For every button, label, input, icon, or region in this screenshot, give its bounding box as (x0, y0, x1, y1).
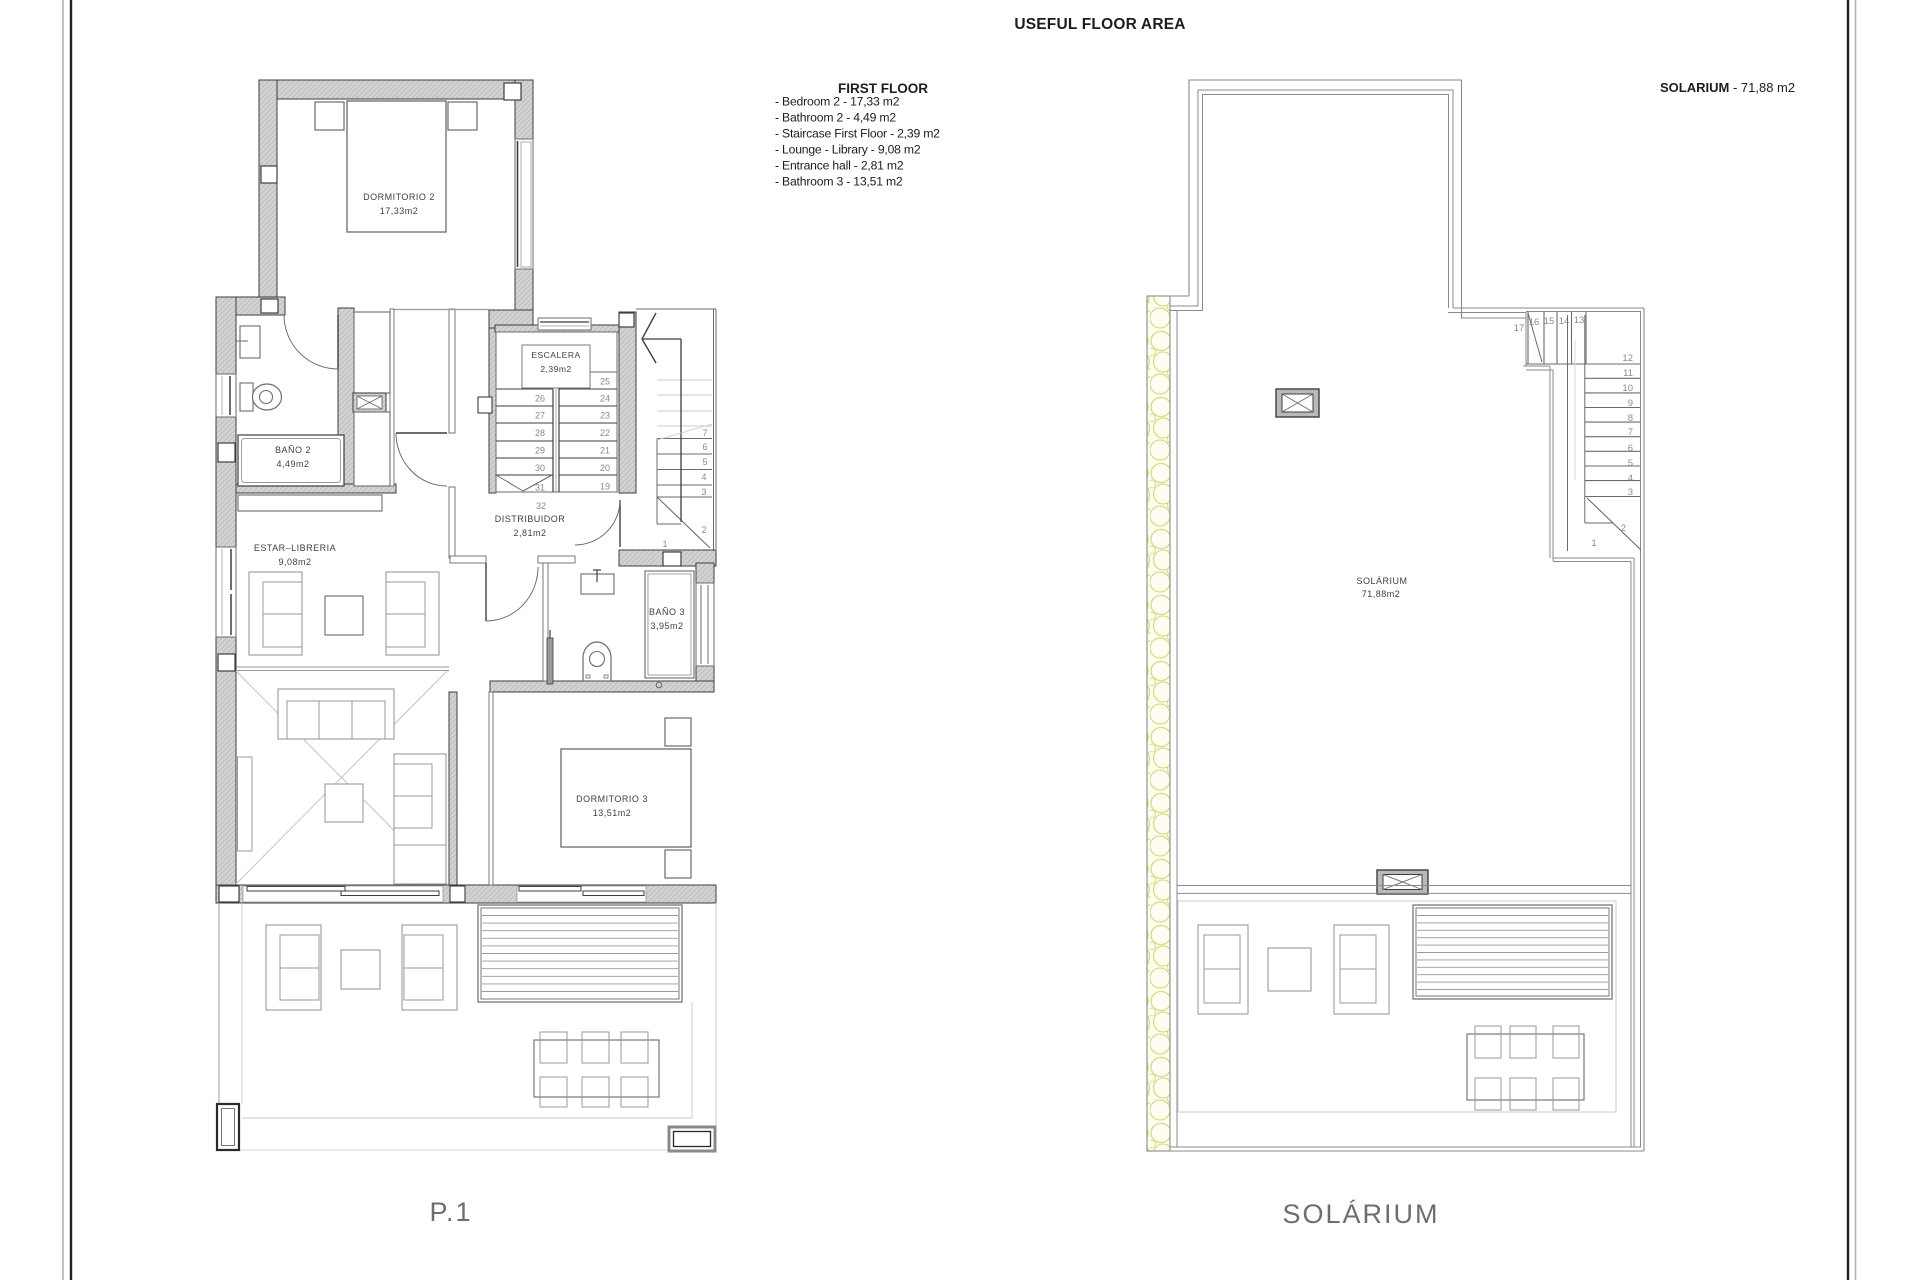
svg-text:13: 13 (1574, 315, 1585, 326)
svg-text:- Entrance hall - 2,81 m2: - Entrance hall - 2,81 m2 (775, 159, 904, 173)
svg-text:SOLÁRIUM: SOLÁRIUM (1356, 576, 1407, 586)
svg-text:BAÑO 3: BAÑO 3 (649, 607, 685, 617)
svg-text:2: 2 (1621, 523, 1626, 534)
svg-text:DORMITORIO 3: DORMITORIO 3 (576, 794, 648, 804)
svg-text:- Staircase First Floor - 2,39: - Staircase First Floor - 2,39 m2 (775, 127, 940, 141)
svg-text:- Bathroom 2 - 4,49 m2: - Bathroom 2 - 4,49 m2 (775, 111, 896, 125)
svg-text:19: 19 (600, 482, 610, 492)
svg-text:4: 4 (1628, 473, 1633, 484)
svg-text:ESCALERA: ESCALERA (531, 350, 580, 360)
svg-text:23: 23 (600, 411, 610, 421)
svg-text:1: 1 (1591, 538, 1596, 549)
svg-text:3: 3 (701, 487, 706, 497)
svg-text:5: 5 (1628, 458, 1633, 469)
svg-text:22: 22 (600, 428, 610, 438)
svg-text:16: 16 (1529, 317, 1540, 328)
svg-text:6: 6 (1628, 443, 1633, 454)
svg-text:2,81m2: 2,81m2 (513, 528, 546, 538)
svg-text:15: 15 (1544, 316, 1555, 327)
svg-text:7: 7 (702, 428, 707, 438)
svg-text:27: 27 (535, 411, 545, 421)
svg-text:26: 26 (535, 394, 545, 404)
svg-text:5: 5 (702, 457, 707, 467)
svg-text:USEFUL FLOOR AREA: USEFUL FLOOR AREA (1014, 16, 1185, 33)
svg-text:25: 25 (600, 377, 610, 387)
svg-text:7: 7 (1628, 427, 1633, 438)
svg-text:SOLÁRIUM: SOLÁRIUM (1282, 1199, 1439, 1229)
svg-text:17,33m2: 17,33m2 (380, 206, 419, 216)
svg-text:9: 9 (1628, 398, 1633, 409)
svg-text:- Bathroom 3 - 13,51 m2: - Bathroom 3 - 13,51 m2 (775, 175, 903, 189)
svg-text:12: 12 (1622, 353, 1633, 364)
svg-text:3,95m2: 3,95m2 (650, 621, 683, 631)
svg-text:P.1: P.1 (429, 1197, 472, 1227)
svg-text:2: 2 (701, 525, 706, 535)
svg-text:28: 28 (535, 428, 545, 438)
svg-text:DORMITORIO 2: DORMITORIO 2 (363, 192, 435, 202)
svg-text:17: 17 (1514, 323, 1525, 334)
svg-text:6: 6 (702, 442, 707, 452)
svg-text:SOLARIUM - 71,88 m2: SOLARIUM - 71,88 m2 (1660, 80, 1795, 95)
svg-text:DISTRIBUIDOR: DISTRIBUIDOR (495, 514, 566, 524)
svg-text:13,51m2: 13,51m2 (593, 808, 632, 818)
svg-text:21: 21 (600, 446, 610, 456)
svg-text:31: 31 (535, 483, 545, 493)
svg-text:- Bedroom 2 - 17,33 m2: - Bedroom 2 - 17,33 m2 (775, 95, 900, 109)
svg-text:8: 8 (1628, 413, 1633, 424)
svg-text:BAÑO 2: BAÑO 2 (275, 445, 311, 455)
svg-text:1: 1 (662, 539, 667, 549)
svg-text:11: 11 (1623, 368, 1633, 379)
svg-text:- Lounge - Library - 9,08 m2: - Lounge - Library - 9,08 m2 (775, 143, 921, 157)
svg-text:30: 30 (535, 463, 545, 473)
svg-text:ESTAR–LIBRERIA: ESTAR–LIBRERIA (254, 543, 336, 553)
svg-text:4,49m2: 4,49m2 (276, 459, 309, 469)
svg-text:4: 4 (701, 472, 706, 482)
svg-text:71,88m2: 71,88m2 (1362, 589, 1401, 599)
svg-text:9,08m2: 9,08m2 (278, 557, 311, 567)
svg-text:32: 32 (536, 501, 546, 511)
svg-text:24: 24 (600, 394, 610, 404)
svg-text:2,39m2: 2,39m2 (540, 364, 571, 374)
svg-text:20: 20 (600, 463, 610, 473)
svg-text:3: 3 (1628, 487, 1633, 498)
svg-text:29: 29 (535, 446, 545, 456)
svg-text:10: 10 (1622, 383, 1633, 394)
